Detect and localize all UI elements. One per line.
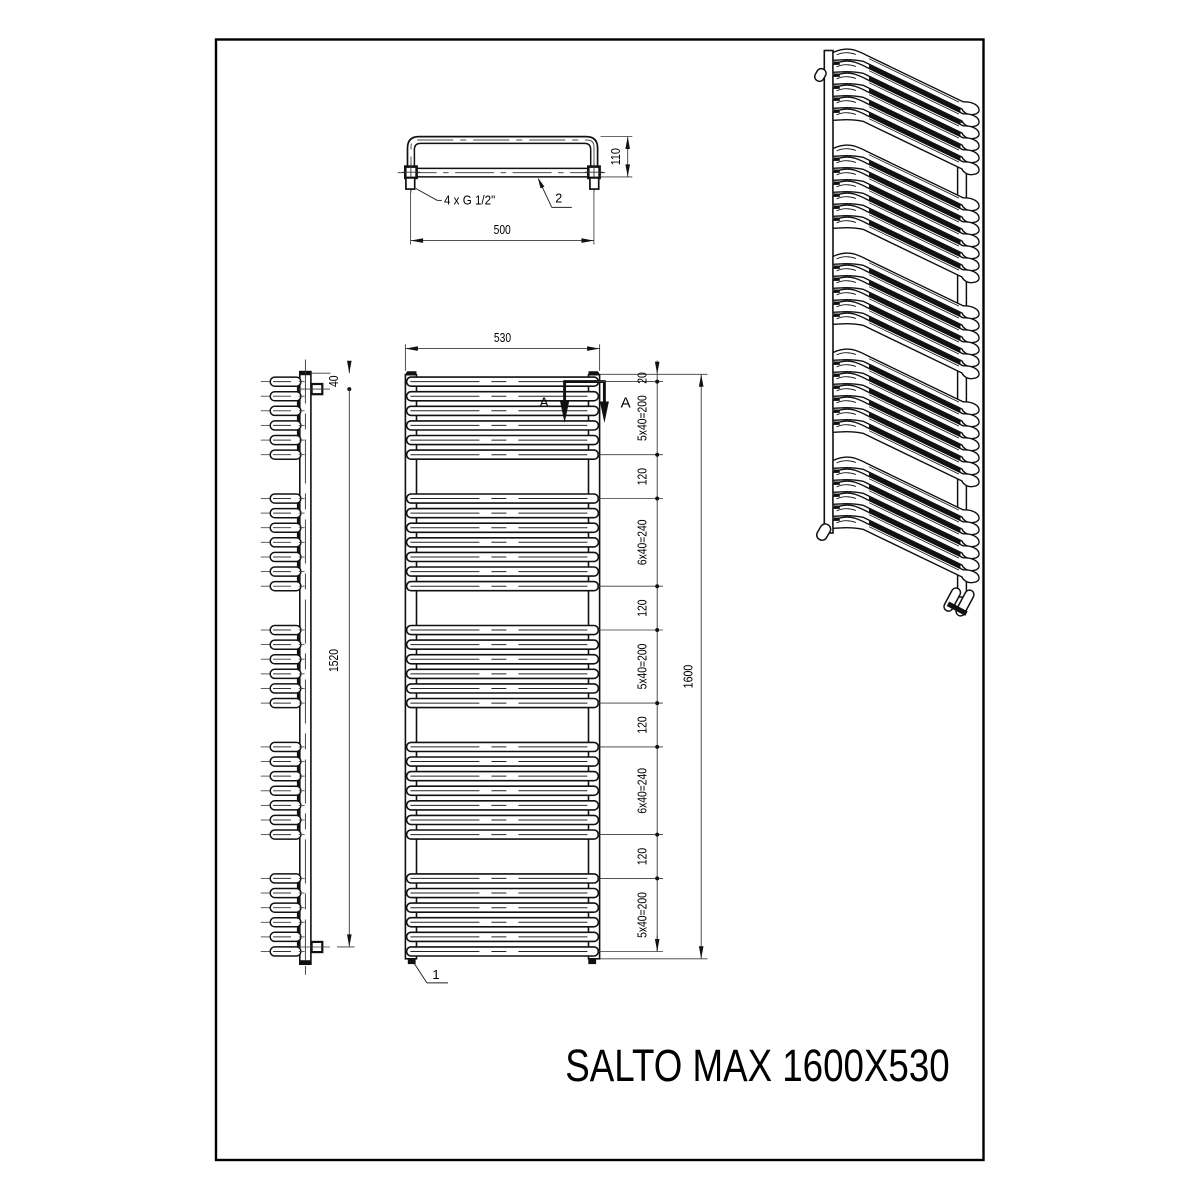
svg-text:40: 40 <box>327 375 341 387</box>
svg-text:20: 20 <box>635 372 649 384</box>
svg-text:1520: 1520 <box>327 649 341 672</box>
svg-text:500: 500 <box>494 223 511 237</box>
svg-text:A: A <box>621 395 631 412</box>
svg-text:5x40=200: 5x40=200 <box>635 395 649 441</box>
svg-text:4 x G 1/2": 4 x G 1/2" <box>444 193 495 207</box>
svg-text:A: A <box>540 394 549 409</box>
svg-text:6x40=240: 6x40=240 <box>635 768 649 814</box>
svg-text:120: 120 <box>635 468 649 485</box>
svg-text:120: 120 <box>635 716 649 733</box>
svg-text:120: 120 <box>635 848 649 865</box>
svg-text:5x40=200: 5x40=200 <box>635 644 649 690</box>
svg-text:6x40=240: 6x40=240 <box>635 519 649 565</box>
svg-text:1: 1 <box>432 967 439 982</box>
svg-text:SALTO MAX 1600X530: SALTO MAX 1600X530 <box>565 1040 949 1091</box>
svg-text:2: 2 <box>555 191 562 205</box>
svg-text:530: 530 <box>494 331 511 345</box>
svg-text:1600: 1600 <box>681 665 696 689</box>
svg-text:120: 120 <box>635 600 649 617</box>
svg-text:110: 110 <box>609 148 623 165</box>
svg-text:5x40=200: 5x40=200 <box>635 892 649 938</box>
